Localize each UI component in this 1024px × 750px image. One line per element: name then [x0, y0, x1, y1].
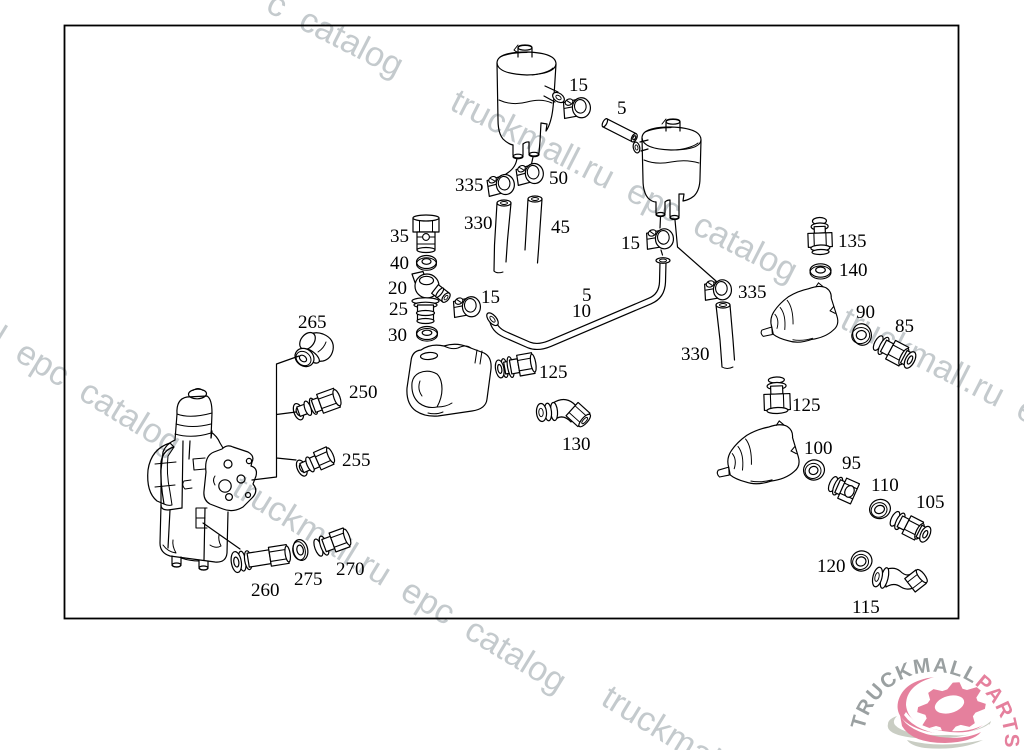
svg-text:5: 5	[617, 98, 627, 119]
svg-text:45: 45	[551, 217, 570, 238]
svg-text:100: 100	[804, 438, 833, 459]
svg-text:270: 270	[336, 559, 365, 580]
svg-text:15: 15	[481, 287, 500, 308]
svg-text:50: 50	[549, 168, 568, 189]
svg-text:335: 335	[455, 175, 484, 196]
svg-text:250: 250	[349, 382, 378, 403]
svg-text:10: 10	[572, 301, 591, 322]
svg-text:130: 130	[562, 434, 591, 455]
svg-text:140: 140	[839, 260, 868, 281]
svg-text:40: 40	[390, 253, 409, 274]
svg-text:335: 335	[738, 282, 767, 303]
svg-text:110: 110	[871, 475, 899, 496]
svg-text:15: 15	[569, 75, 588, 96]
svg-text:275: 275	[294, 569, 323, 590]
svg-text:35: 35	[390, 226, 409, 247]
svg-text:260: 260	[251, 580, 280, 601]
svg-text:330: 330	[464, 213, 493, 234]
svg-text:330: 330	[681, 344, 710, 365]
svg-text:105: 105	[916, 492, 945, 513]
svg-text:15: 15	[621, 233, 640, 254]
svg-text:125: 125	[539, 362, 568, 383]
svg-text:120: 120	[817, 556, 846, 577]
svg-text:25: 25	[389, 299, 408, 320]
svg-text:30: 30	[388, 325, 407, 346]
svg-text:255: 255	[342, 450, 371, 471]
svg-text:90: 90	[856, 302, 875, 323]
svg-text:115: 115	[852, 597, 880, 618]
svg-text:20: 20	[388, 278, 407, 299]
svg-text:95: 95	[842, 453, 861, 474]
svg-text:135: 135	[838, 231, 867, 252]
svg-text:125: 125	[792, 395, 821, 416]
svg-text:85: 85	[895, 316, 914, 337]
svg-text:265: 265	[298, 312, 327, 333]
